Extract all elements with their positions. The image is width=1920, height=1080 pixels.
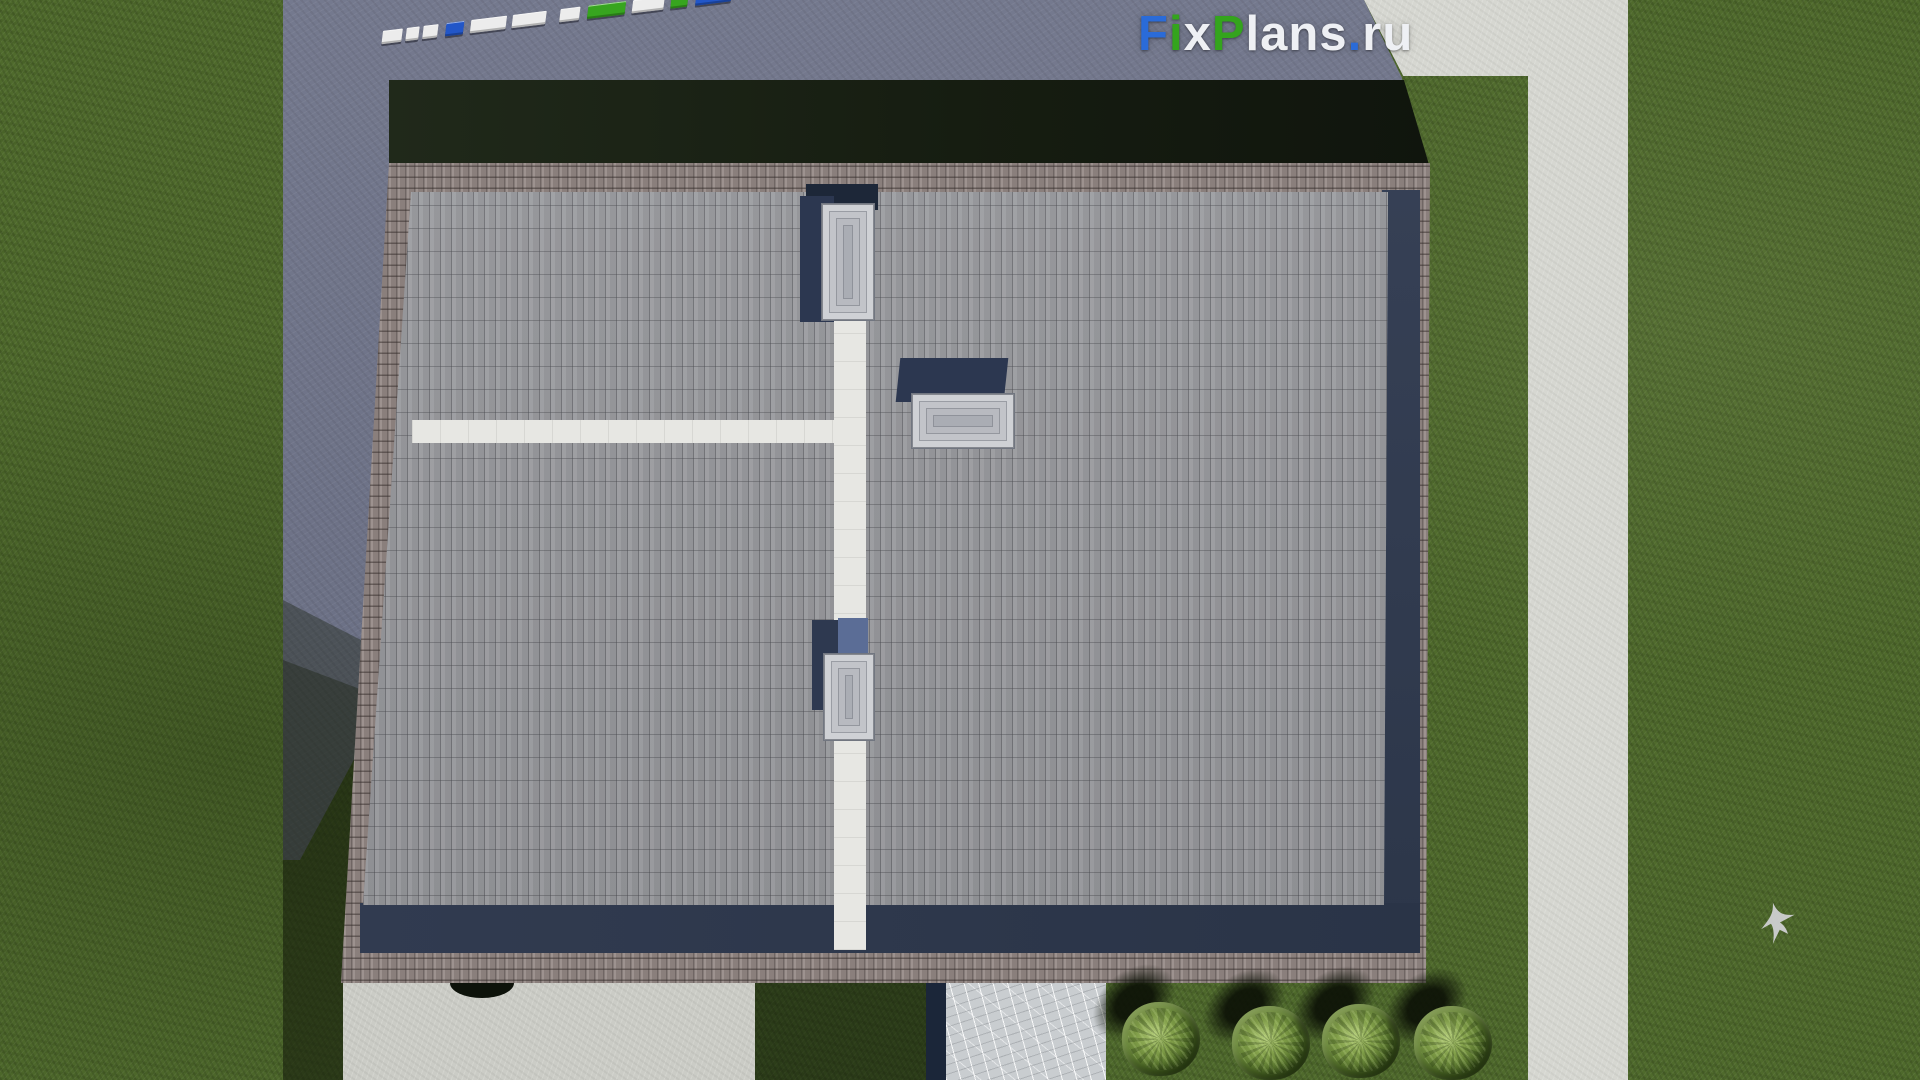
bird-icon bbox=[1745, 892, 1811, 954]
watermark-letter: x bbox=[1184, 7, 1212, 61]
concrete-path-right bbox=[1528, 0, 1628, 1080]
watermark-letter: F bbox=[1138, 7, 1169, 61]
watermark-letter: u bbox=[1382, 7, 1413, 61]
marble-walkway bbox=[946, 983, 1106, 1080]
watermark-letter: n bbox=[1288, 7, 1319, 61]
aerial-render-scene: FixPlans.ru bbox=[0, 0, 1920, 1080]
roof-parapet-shadow-bottom bbox=[360, 903, 1420, 953]
watermark-letter: r bbox=[1362, 7, 1382, 61]
scale-bar-segment bbox=[405, 26, 420, 41]
watermark-letter: P bbox=[1212, 7, 1246, 61]
skylight-3 bbox=[824, 654, 874, 740]
watermark-letter: i bbox=[1169, 7, 1184, 61]
watermark-letter: s bbox=[1319, 7, 1347, 61]
scale-bar-segment bbox=[445, 20, 464, 35]
bush bbox=[1414, 1006, 1500, 1080]
bush-foliage bbox=[1414, 1006, 1492, 1080]
walkway-edge-strip bbox=[926, 983, 946, 1080]
scale-bar-segment bbox=[559, 6, 580, 22]
scale-bar-segment bbox=[422, 24, 439, 39]
drain-notch bbox=[450, 983, 514, 998]
fixplans-watermark: FixPlans.ru bbox=[1138, 6, 1413, 62]
watermark-letter: l bbox=[1246, 7, 1261, 61]
skylight-2 bbox=[912, 394, 1014, 448]
skylight-1 bbox=[822, 204, 874, 320]
pavement-bottom-left bbox=[343, 983, 755, 1080]
shadowed-grass-band bbox=[389, 80, 1430, 168]
bush-foliage bbox=[1122, 1002, 1200, 1076]
watermark-letter: . bbox=[1348, 7, 1363, 61]
shadowed-grass-under-roof bbox=[755, 983, 928, 1080]
roof-ridge-strip-horizontal bbox=[412, 420, 852, 443]
scale-bar-segment bbox=[381, 28, 402, 44]
roof-parapet-shadow-right bbox=[1382, 190, 1420, 952]
watermark-letter: a bbox=[1260, 7, 1288, 61]
